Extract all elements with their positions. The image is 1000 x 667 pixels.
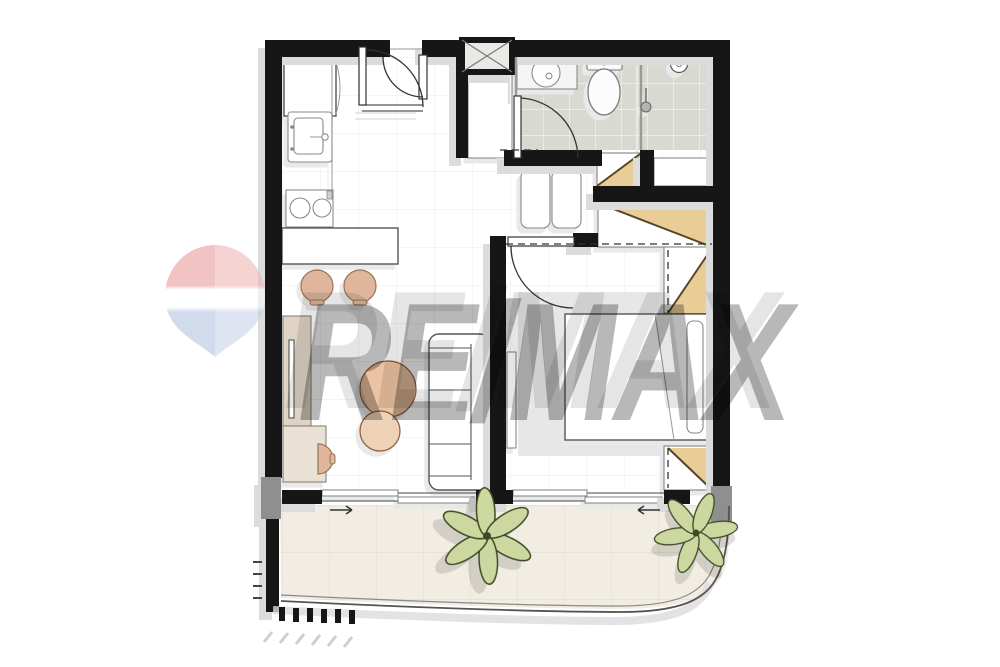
toilet [587,57,622,115]
kitchen-sink [288,112,332,162]
floorplan-drawing: RE/MAX RE/MAX [0,0,1000,667]
wardrobe-nook [597,153,640,186]
wall-top-left [265,40,390,57]
stove [286,190,333,227]
remax-balloon-logo [165,240,270,362]
slider-panel [322,490,398,496]
wall-bottom-stub-left [282,490,322,504]
watermark: RE/MAX RE/MAX [165,240,799,456]
storage-closet [468,74,512,158]
wall-ticks [253,562,262,598]
floorplan-page: RE/MAX RE/MAX [0,0,1000,667]
slider-panel [398,497,474,503]
wall-dressing-top [593,186,713,202]
watermark-text: RE/MAX [298,268,799,456]
shaft [462,40,512,72]
wall-balcony-left [266,519,279,612]
wardrobe-dressing [598,202,712,247]
wall-bedroom-stub [573,233,598,247]
wall-nook-stub [640,150,654,186]
fridge [284,60,336,116]
slider-panel [513,490,587,496]
hatch-marks [264,632,352,647]
washbasin [517,57,577,89]
wall-left [265,40,282,478]
bathroom-niche [654,158,713,186]
pillar-left [261,477,281,519]
slider-panel [585,497,662,503]
